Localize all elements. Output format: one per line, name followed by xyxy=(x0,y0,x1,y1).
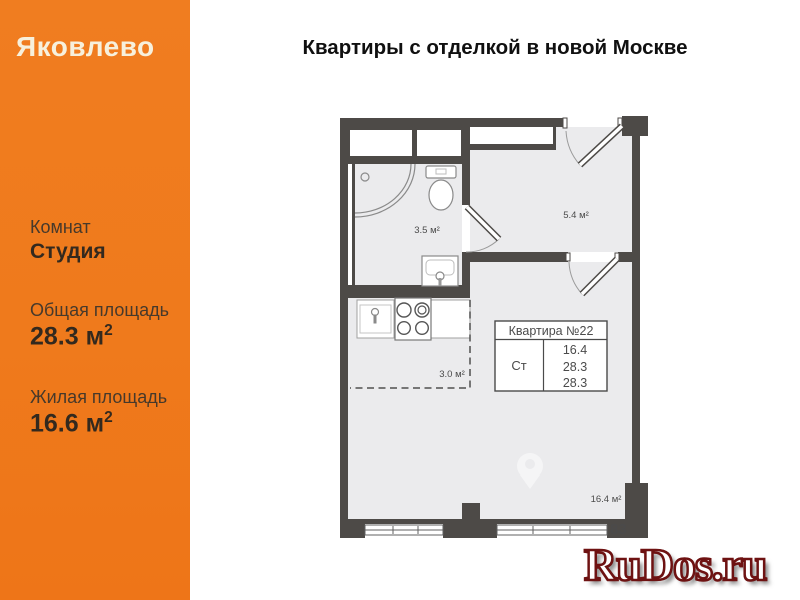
apartment-info-table: Квартира №22 Ст 16.4 28.3 28.3 xyxy=(495,321,607,391)
living-area-sup: 2 xyxy=(104,409,113,426)
living-area-number: 16.6 м xyxy=(30,409,104,437)
area-value: 28.3 xyxy=(563,376,587,390)
floor-plan: 3.5 м² 5.4 м² 3.0 м² 16.4 м² Квартира №2… xyxy=(338,114,650,538)
site-watermark: RuDos.ru xyxy=(584,538,766,591)
sidebar: Яковлево Комнат Студия Общая площадь 28.… xyxy=(0,0,190,600)
brand-logo: Яковлево xyxy=(16,31,155,63)
living-room-area-label: 16.4 м² xyxy=(591,494,622,505)
stove-fixture xyxy=(395,298,431,340)
duct-shaft xyxy=(417,130,461,156)
apartment-number: Квартира №22 xyxy=(509,324,594,338)
total-area-sup: 2 xyxy=(104,322,113,339)
living-area-label: Жилая площадь xyxy=(30,387,167,408)
entrance-opening xyxy=(564,118,622,127)
rooms-label: Комнат xyxy=(30,217,91,238)
bathroom-area-label: 3.5 м² xyxy=(414,225,440,236)
area-value: 28.3 xyxy=(563,360,587,374)
bath-sink-fixture xyxy=(422,256,458,286)
duct-shaft xyxy=(350,130,412,156)
total-area-value: 28.3 м2 xyxy=(30,322,113,351)
flyer: Яковлево Комнат Студия Общая площадь 28.… xyxy=(0,0,800,600)
hallway-niche xyxy=(470,127,553,144)
hall-door-opening xyxy=(568,252,618,262)
kitchen-area-label: 3.0 м² xyxy=(439,369,465,380)
living-area-value: 16.6 м2 xyxy=(30,409,113,438)
total-area-label: Общая площадь xyxy=(30,300,169,321)
page-title: Квартиры с отделкой в новой Москве xyxy=(190,36,800,60)
rooms-value: Студия xyxy=(30,240,106,264)
window xyxy=(497,524,607,538)
window xyxy=(365,524,443,538)
watermark-digits: 83 xyxy=(610,521,627,538)
apartment-type: Ст xyxy=(511,358,526,373)
area-value: 16.4 xyxy=(563,343,587,357)
total-area-number: 28.3 м xyxy=(30,322,104,350)
hallway-area-label: 5.4 м² xyxy=(563,210,589,221)
toilet-fixture xyxy=(426,166,456,210)
